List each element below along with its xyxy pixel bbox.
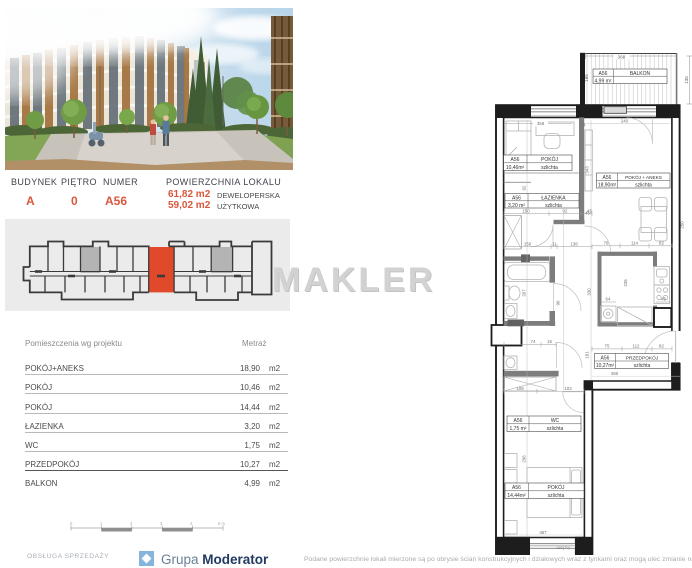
- svg-text:368: 368: [611, 371, 619, 376]
- svg-text:szlichta: szlichta: [541, 165, 558, 171]
- svg-text:A56: A56: [512, 485, 521, 491]
- svg-text:75: 75: [605, 344, 610, 349]
- svg-text:2: 2: [130, 521, 133, 526]
- svg-text:165: 165: [584, 74, 589, 82]
- svg-text:1: 1: [100, 521, 103, 526]
- svg-text:92: 92: [563, 208, 568, 213]
- svg-text:3,20 m²: 3,20 m²: [508, 203, 525, 209]
- svg-text:108: 108: [516, 386, 524, 391]
- svg-text:74: 74: [531, 339, 536, 344]
- svg-text:4,99 m²: 4,99 m²: [595, 78, 612, 84]
- svg-text:367: 367: [539, 530, 547, 535]
- svg-text:45: 45: [585, 211, 590, 216]
- svg-text:82: 82: [659, 241, 664, 246]
- svg-text:PRZEDPOKÓJ: PRZEDPOKÓJ: [626, 355, 659, 362]
- svg-text:150(70): 150(70): [556, 545, 570, 550]
- svg-text:330: 330: [587, 288, 592, 296]
- svg-text:150: 150: [524, 241, 532, 246]
- svg-text:138: 138: [570, 241, 578, 246]
- svg-text:0: 0: [70, 521, 73, 526]
- svg-text:240: 240: [621, 119, 629, 124]
- svg-text:szlichta: szlichta: [545, 203, 562, 209]
- svg-text:181: 181: [585, 351, 590, 359]
- svg-text:368: 368: [618, 55, 626, 60]
- svg-text:15: 15: [547, 339, 552, 344]
- svg-text:235: 235: [623, 279, 628, 287]
- svg-text:92: 92: [522, 185, 527, 190]
- svg-text:WC: WC: [551, 418, 560, 424]
- svg-text:296: 296: [522, 455, 527, 463]
- svg-text:45: 45: [661, 297, 666, 302]
- svg-text:112: 112: [633, 344, 641, 349]
- svg-text:150: 150: [522, 208, 530, 213]
- svg-text:358: 358: [537, 121, 545, 126]
- svg-text:3: 3: [160, 521, 163, 526]
- svg-text:82: 82: [659, 344, 664, 349]
- svg-text:343: 343: [585, 166, 590, 174]
- svg-text:A56: A56: [511, 157, 520, 163]
- svg-text:103: 103: [564, 386, 572, 391]
- svg-text:A56: A56: [599, 71, 608, 77]
- svg-text:11: 11: [581, 122, 586, 127]
- svg-text:szlichta: szlichta: [548, 493, 565, 499]
- svg-text:5 m: 5 m: [218, 521, 225, 526]
- svg-text:A56: A56: [512, 195, 521, 201]
- svg-text:18,90m²: 18,90m²: [598, 183, 617, 189]
- svg-text:64: 64: [606, 297, 611, 302]
- svg-text:1,75 m²: 1,75 m²: [510, 426, 527, 432]
- svg-text:4: 4: [190, 521, 193, 526]
- svg-text:11: 11: [552, 241, 557, 246]
- svg-text:14,44m²: 14,44m²: [507, 493, 526, 499]
- svg-text:szlichta: szlichta: [634, 363, 651, 369]
- svg-text:ŁAZIENKA: ŁAZIENKA: [541, 195, 566, 201]
- svg-text:90: 90: [556, 300, 561, 305]
- svg-text:A56: A56: [603, 175, 612, 181]
- svg-text:76: 76: [604, 241, 609, 246]
- svg-text:POKÓJ + ANEKS: POKÓJ + ANEKS: [625, 174, 662, 180]
- svg-text:114: 114: [631, 241, 639, 246]
- svg-text:szlichta: szlichta: [635, 183, 652, 189]
- svg-text:10,27m²: 10,27m²: [596, 363, 615, 369]
- svg-text:250: 250: [680, 221, 685, 229]
- svg-text:BALKON: BALKON: [630, 71, 651, 77]
- svg-text:POKÓJ: POKÓJ: [548, 484, 565, 491]
- svg-text:A56: A56: [514, 418, 523, 424]
- svg-text:135: 135: [684, 76, 689, 84]
- svg-text:A56: A56: [601, 356, 610, 362]
- svg-text:10,46m²: 10,46m²: [506, 165, 525, 171]
- svg-text:207: 207: [522, 289, 527, 297]
- svg-text:szlichta: szlichta: [547, 426, 564, 432]
- svg-text:POKÓJ: POKÓJ: [541, 156, 558, 163]
